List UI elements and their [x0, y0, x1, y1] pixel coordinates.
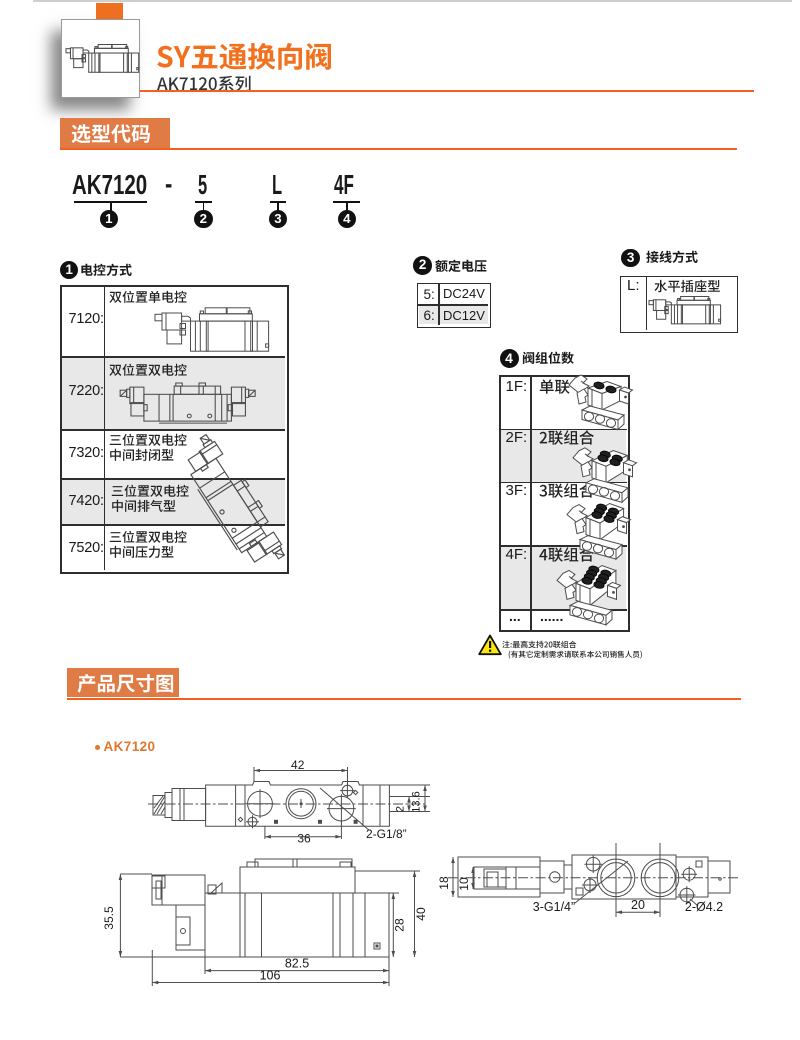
svg-text:2-Ø4.2: 2-Ø4.2 [685, 900, 723, 914]
svg-text:2: 2 [395, 806, 407, 812]
svg-text:35.5: 35.5 [102, 906, 116, 930]
svg-text:18: 18 [437, 876, 451, 890]
svg-text:36: 36 [297, 832, 311, 846]
svg-text:28: 28 [393, 918, 407, 932]
svg-text:3-G1/4”: 3-G1/4” [533, 900, 575, 914]
svg-text:20: 20 [631, 898, 645, 912]
svg-text:40: 40 [414, 907, 428, 921]
svg-text:106: 106 [260, 969, 281, 983]
svg-text:82.5: 82.5 [285, 957, 309, 971]
svg-text:42: 42 [291, 758, 305, 772]
svg-text:10: 10 [457, 877, 471, 891]
svg-text:13.6: 13.6 [411, 791, 423, 812]
svg-text:2-G1/8”: 2-G1/8” [366, 827, 407, 841]
